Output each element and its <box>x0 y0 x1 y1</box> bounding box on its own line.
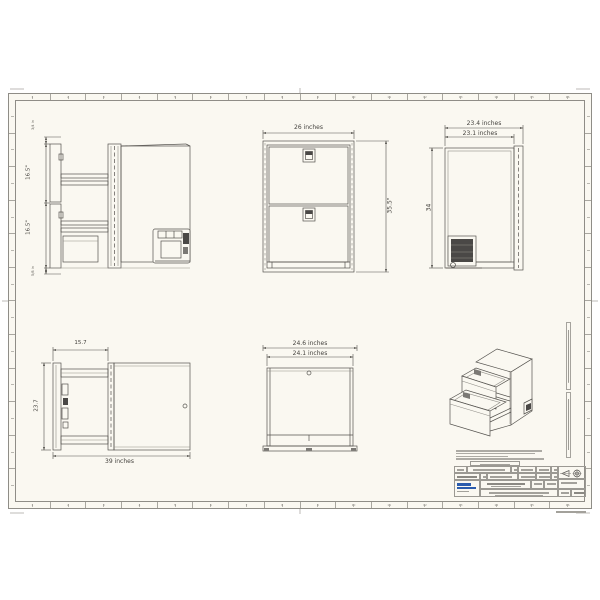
title-block-material-cell <box>518 466 536 473</box>
title-block-sheet-cell <box>558 489 571 497</box>
dim-label-front-width: 26 inches <box>283 124 334 131</box>
title-block-cell <box>544 480 558 489</box>
title-block-cell <box>531 480 544 489</box>
footer-microtext <box>556 511 586 513</box>
view-isometric <box>450 349 532 436</box>
margin-label-strip <box>566 322 571 390</box>
dim-label-top-open-length: 39 inches <box>96 458 143 465</box>
projection-symbol-cell <box>558 466 586 479</box>
disclaimer-microtext <box>456 449 548 461</box>
margin-label-strip <box>566 392 571 458</box>
title-block-name-cell <box>518 473 536 480</box>
view-top-closed <box>263 345 357 451</box>
title-block-drawn-by-cell <box>487 473 518 480</box>
dim-label-side-section-top: 3/4 in <box>30 117 36 133</box>
title-block-description-cell <box>467 466 511 473</box>
drawing-linework <box>0 0 600 600</box>
title-block-subtitle-cell <box>480 489 558 497</box>
dim-label-side-height: 34 <box>426 201 433 215</box>
drawing-page: 12345678910111213141516 1234567891011121… <box>0 0 600 600</box>
title-block-date2-cell <box>536 473 551 480</box>
dim-label-side-section-lower: 16.5" <box>26 219 33 237</box>
dim-label-side-depth-overall: 23.4 inches <box>459 120 509 127</box>
title-block-cell <box>511 466 518 473</box>
dim-label-top-open-extension: 15.7 <box>70 340 91 347</box>
title-block <box>454 466 586 497</box>
view-front <box>263 130 389 272</box>
dim-label-top-closed-body: 24.1 inches <box>284 350 336 357</box>
dim-label-front-height: 35.5" <box>387 194 394 218</box>
title-block-cell <box>558 479 586 489</box>
view-top-open <box>41 347 190 459</box>
title-block-cell <box>551 466 558 473</box>
title-block-tolerance-cell <box>454 473 480 480</box>
dim-label-side-section-bottom: 5/8 in <box>30 263 36 279</box>
title-block-number-cell <box>571 489 586 497</box>
dim-label-top-open-width: 23.7 <box>34 396 41 416</box>
view-side <box>429 125 523 270</box>
company-logo <box>454 480 480 497</box>
dim-label-side-section-upper: 16.5" <box>26 164 33 182</box>
title-block-scale-cell <box>551 473 558 480</box>
view-side-section <box>44 137 190 274</box>
dim-label-top-closed-overall: 24.6 inches <box>284 340 336 347</box>
title-block-date-cell <box>536 466 551 473</box>
title-block-rev-cell <box>454 466 467 473</box>
title-block-title-cell <box>480 480 531 489</box>
third-angle-projection-icon <box>559 467 584 478</box>
dim-label-side-depth-body: 23.1 inches <box>455 130 505 137</box>
title-block-symbol-cell <box>480 473 487 480</box>
